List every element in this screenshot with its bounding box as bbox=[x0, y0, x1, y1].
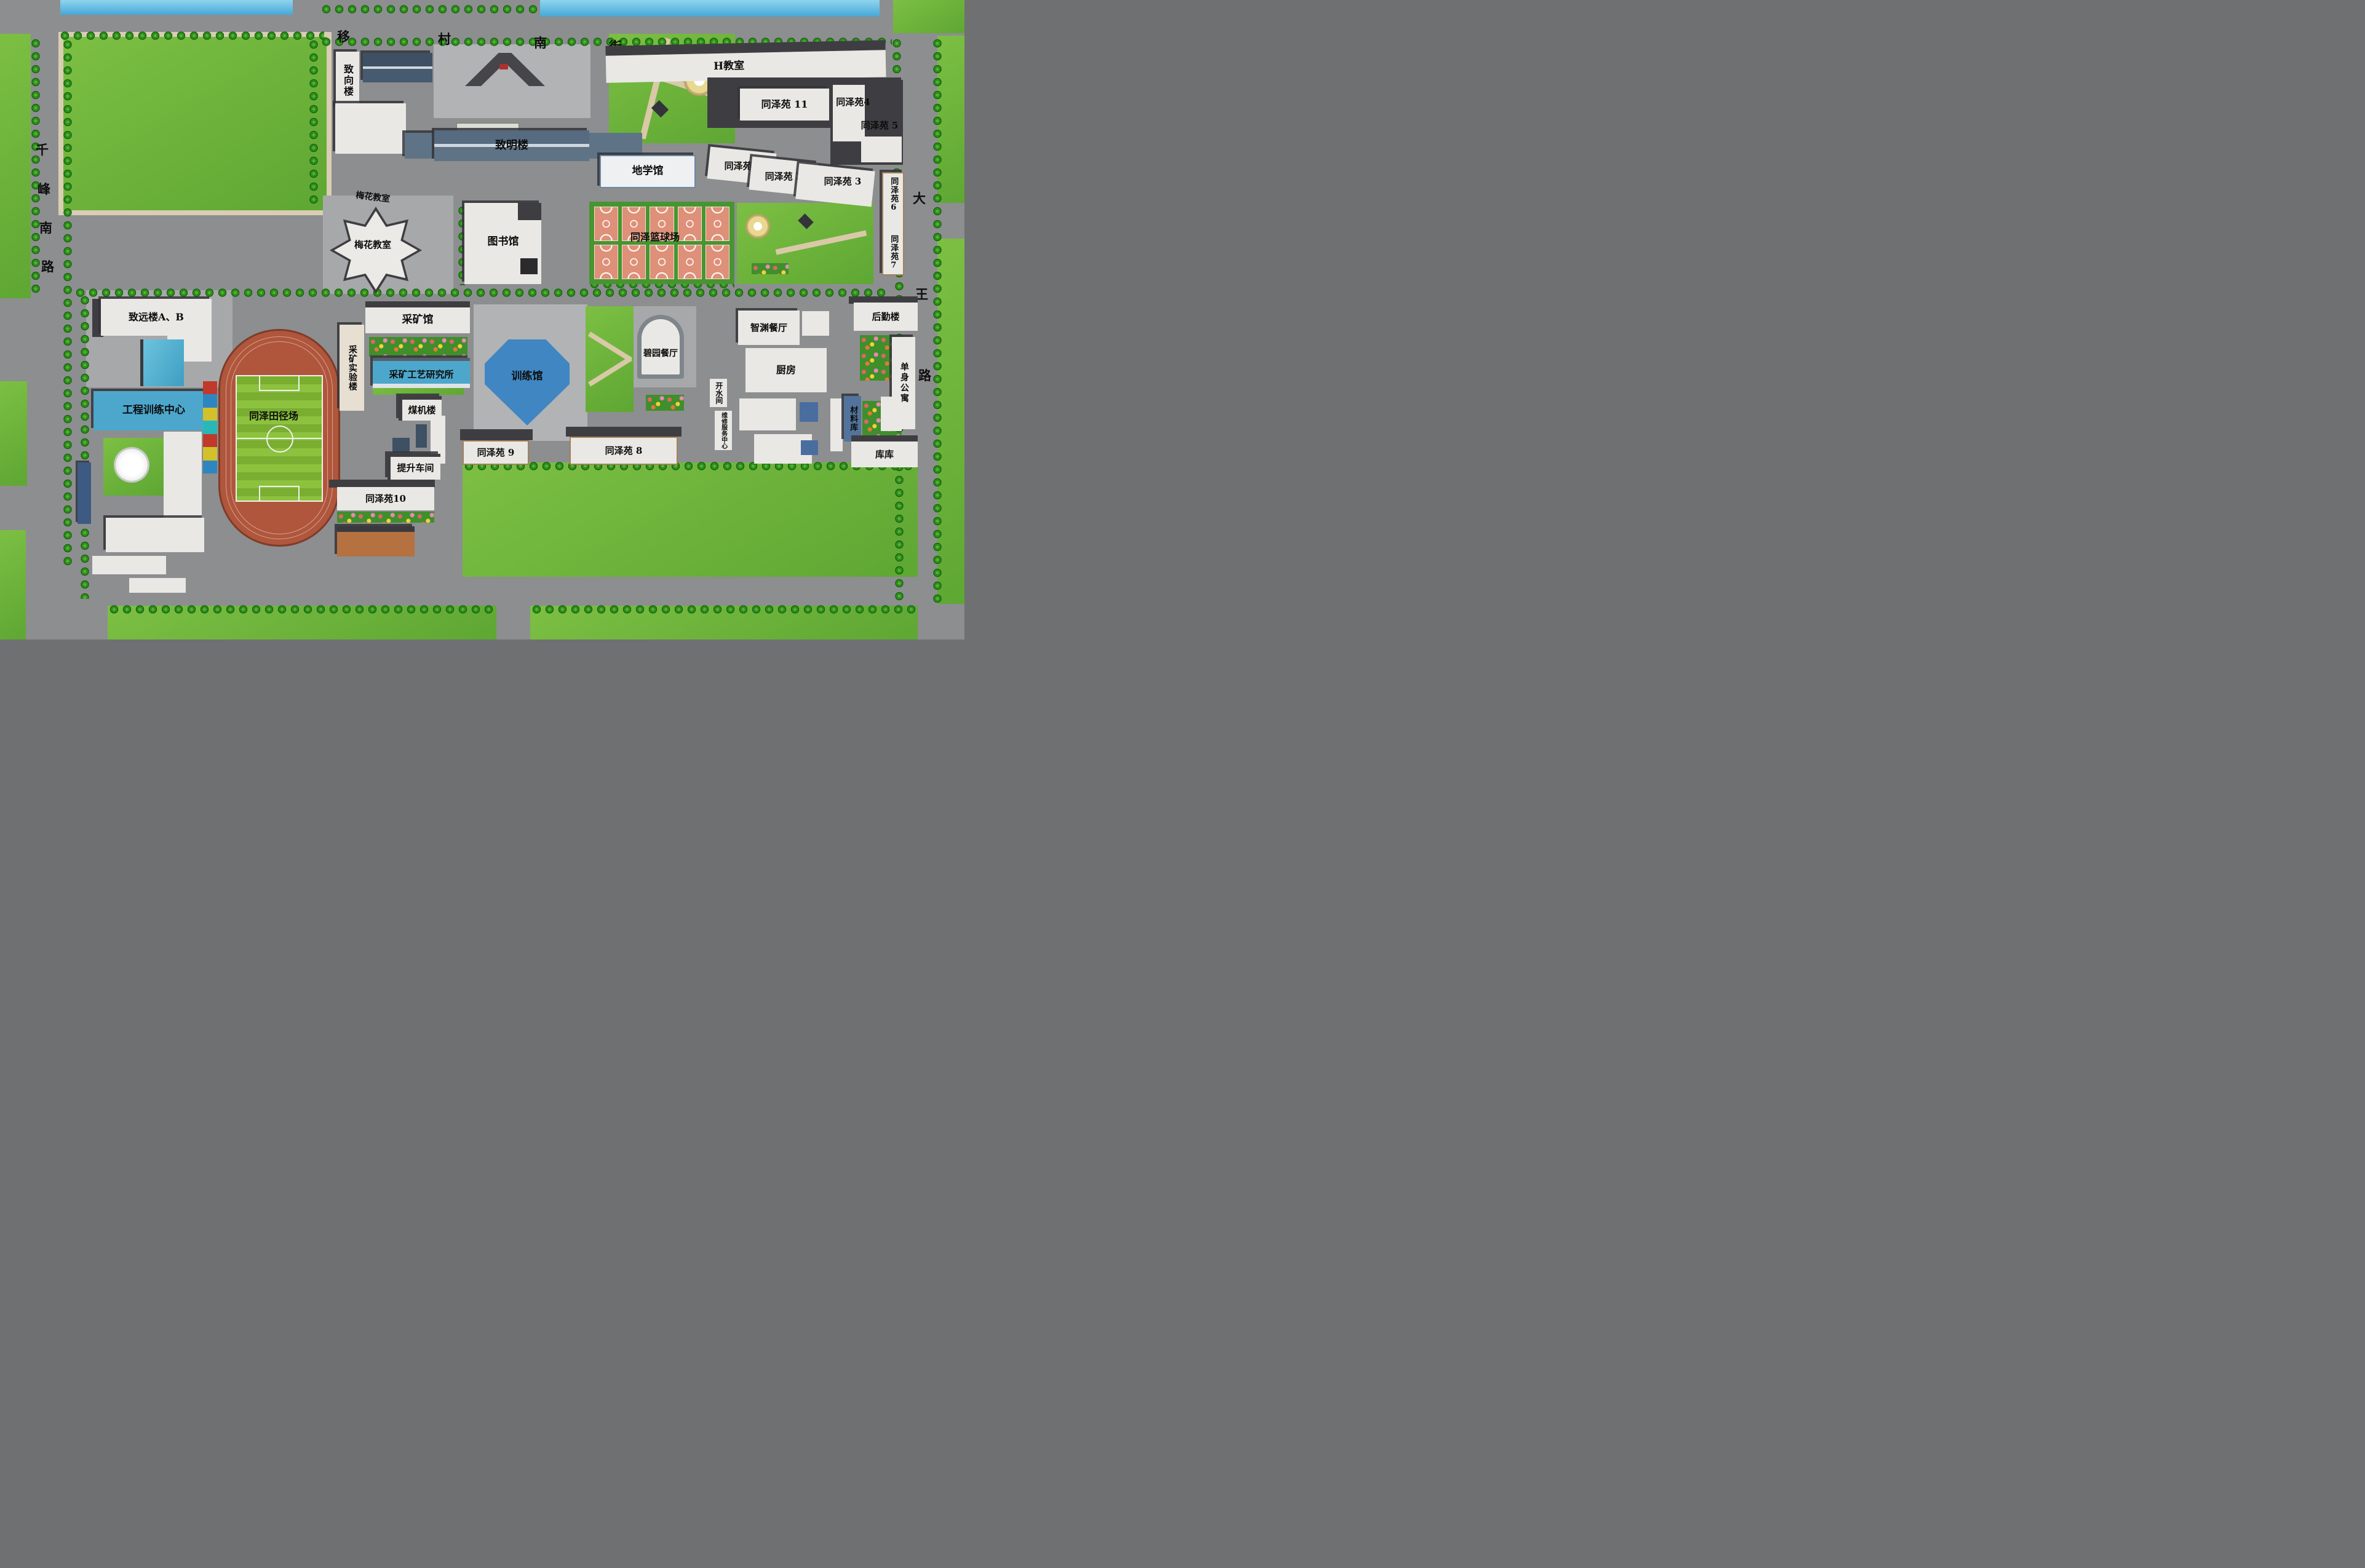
label-tzy3: 同泽苑 3 bbox=[818, 176, 867, 187]
lawn-northwest-field bbox=[58, 32, 332, 215]
building-kuku: 库库 bbox=[851, 441, 918, 467]
label-caikuang-shiyanlou: 采矿实验楼 bbox=[347, 345, 357, 391]
basketball-court bbox=[594, 245, 618, 279]
building-weixiu-fuwu: 维修服务中心 bbox=[715, 411, 732, 450]
building-houqinlou: 后勤楼 bbox=[854, 303, 918, 331]
basketball-court bbox=[622, 245, 646, 279]
pool bbox=[140, 339, 184, 386]
label-xunlianguan: 训练馆 bbox=[512, 371, 543, 382]
tree-column bbox=[30, 37, 42, 295]
basketball-courts bbox=[589, 202, 734, 284]
building-dixueguan: 地学馆 bbox=[600, 155, 696, 188]
building-tzy9: 同泽苑 9 bbox=[463, 440, 529, 465]
label-basketball: 同泽篮球场 bbox=[615, 232, 695, 243]
label-tisheng-chejian: 提升车间 bbox=[397, 463, 434, 473]
basketball-court bbox=[650, 245, 674, 279]
penalty-box bbox=[259, 375, 300, 391]
grandstand bbox=[203, 381, 217, 473]
building-biyuan-canting: 碧园餐厅 bbox=[637, 315, 684, 379]
street-name-north-char: 村 bbox=[438, 30, 451, 48]
building-kaishuijian: 开水间 bbox=[710, 379, 727, 407]
street-name-north-char: 移 bbox=[337, 27, 350, 46]
label-kaishuijian: 开水间 bbox=[714, 382, 722, 404]
label-tzy8: 同泽苑 8 bbox=[605, 446, 643, 456]
building-navy-slab bbox=[363, 53, 432, 82]
building-library-annex bbox=[518, 203, 541, 220]
label-chufang: 厨房 bbox=[776, 365, 796, 376]
label-zhiyuan-canting: 智渊餐厅 bbox=[750, 323, 787, 333]
building-zhixianglou: 致向楼 bbox=[336, 52, 359, 109]
building-biyuan-inner bbox=[642, 319, 680, 374]
lawn-left-edge bbox=[0, 34, 31, 298]
building-sw-slab bbox=[106, 518, 204, 552]
gate-red-accent bbox=[499, 64, 508, 69]
solar-panel-slab bbox=[416, 424, 427, 448]
building-meihua bbox=[334, 211, 418, 290]
basketball-court bbox=[706, 245, 729, 279]
label-meihua: 梅花教室 bbox=[344, 240, 401, 250]
garden-tzy10 bbox=[337, 512, 434, 523]
label-tzy5: 同泽苑 5 bbox=[856, 121, 903, 131]
building-zhiminglou-wing-left bbox=[405, 133, 437, 159]
building-zhiyuanlou-ab: 致远楼A、B bbox=[101, 299, 212, 336]
building-tzy6-tzy7: 同泽苑6 同泽苑7 bbox=[882, 172, 904, 275]
street-name-west-char: 千 bbox=[36, 140, 49, 159]
building-cailiaoku: 材料库 bbox=[844, 396, 861, 441]
building-gongcheng-xunlian: 工程训练中心 bbox=[93, 391, 214, 430]
street-name-west-char: 峰 bbox=[38, 180, 50, 198]
lawn-southeast-field bbox=[463, 462, 918, 577]
label-zhiyuanlou-ab: 致远楼A、B bbox=[129, 312, 184, 323]
tree-row bbox=[108, 603, 496, 616]
glass-roof-panel bbox=[800, 402, 818, 422]
river-top-right bbox=[540, 0, 880, 17]
label-dixueguan: 地学馆 bbox=[632, 165, 664, 177]
label-meijilou: 煤机楼 bbox=[408, 405, 435, 416]
penalty-box bbox=[259, 486, 300, 502]
building-caikuang-gongyi: 采矿工艺研究所 bbox=[373, 358, 470, 388]
label-library: 图书馆 bbox=[472, 236, 534, 248]
soccer-field bbox=[236, 375, 323, 502]
label-kuku: 库库 bbox=[875, 449, 894, 460]
tree-row bbox=[58, 30, 324, 42]
building-sw-tower bbox=[164, 432, 202, 521]
street-name-west-char: 路 bbox=[41, 257, 54, 275]
shade-tzy9 bbox=[460, 429, 533, 440]
garden-mining-1 bbox=[369, 337, 467, 357]
tree-column bbox=[62, 38, 74, 567]
building-caikuang-shiyanlou: 采矿实验楼 bbox=[340, 325, 364, 411]
label-tzy9: 同泽苑 9 bbox=[477, 448, 515, 458]
label-tzy7: 同泽苑7 bbox=[889, 235, 898, 271]
building-zhiyuan-annex bbox=[802, 311, 829, 336]
shade-kuku bbox=[851, 435, 918, 441]
shade-tzy8 bbox=[566, 427, 682, 437]
building-library-block bbox=[520, 258, 538, 274]
label-caikuang-gongyi: 采矿工艺研究所 bbox=[389, 370, 453, 380]
label-tzy6: 同泽苑6 bbox=[889, 177, 898, 213]
street-name-west-char: 南 bbox=[39, 218, 52, 237]
building-sw-small2 bbox=[129, 578, 186, 593]
building-sw-blue-slab bbox=[78, 462, 91, 524]
lawn-bottom-left-corner bbox=[0, 530, 26, 639]
label-h-classroom: H教室 bbox=[713, 60, 744, 73]
building-zhiyuan-canting: 智渊餐厅 bbox=[738, 311, 800, 345]
label-tzy11: 同泽苑 11 bbox=[761, 99, 808, 110]
label-zhiminglou: 致明楼 bbox=[495, 140, 528, 152]
label-caikuangguan: 采矿馆 bbox=[402, 314, 434, 326]
flower-bed bbox=[752, 263, 789, 274]
building-tisheng-chejian: 提升车间 bbox=[388, 454, 440, 480]
tree-row bbox=[74, 287, 886, 299]
lawn-left-edge-lower bbox=[0, 381, 27, 486]
building-zhiminglou: 致明楼 bbox=[434, 130, 589, 161]
building-dining-annex bbox=[739, 398, 796, 430]
label-tzy4: 同泽苑4 bbox=[832, 97, 875, 108]
solar-panel-slab bbox=[392, 438, 410, 453]
building-chufang: 厨房 bbox=[745, 348, 827, 392]
tree-row bbox=[320, 3, 541, 15]
building-cailiaoku-neighbor bbox=[830, 398, 843, 451]
street-name-north-char: 南 bbox=[534, 33, 547, 52]
glass-roof-panel bbox=[801, 440, 818, 455]
sun-fountain bbox=[745, 214, 770, 239]
building-caikuangguan: 采矿馆 bbox=[365, 307, 470, 333]
garden-houqin bbox=[860, 335, 896, 381]
street-name-east-char: 路 bbox=[918, 366, 931, 384]
building-tzy5 bbox=[861, 137, 902, 162]
building-east-roadside bbox=[881, 397, 902, 431]
circular-plaza bbox=[116, 449, 148, 481]
campus-master-plan-map: 移 村 南 街 千 峰 南 路 大 王 路 致向楼 致明楼 H教室 同泽苑 11… bbox=[0, 0, 964, 639]
building-tzy11: 同泽苑 11 bbox=[740, 89, 829, 121]
label-weixiu-fuwu: 维修服务中心 bbox=[720, 412, 726, 449]
tree-column bbox=[79, 294, 91, 599]
building-tzy4 bbox=[833, 85, 865, 141]
building-sw-small bbox=[92, 556, 166, 574]
tree-row bbox=[463, 460, 918, 472]
label-zhixianglou: 致向楼 bbox=[342, 64, 353, 97]
street-name-east-char: 大 bbox=[913, 189, 926, 207]
building-tzy8: 同泽苑 8 bbox=[570, 437, 678, 465]
label-tianjingchang: 同泽田径场 bbox=[234, 411, 314, 422]
building-tzy10: 同泽苑10 bbox=[337, 487, 434, 510]
building-unlabeled-west bbox=[335, 103, 406, 154]
tree-row bbox=[530, 603, 918, 616]
label-cailiaoku: 材料库 bbox=[848, 406, 857, 432]
flower-diamond-garden bbox=[646, 395, 684, 411]
label-tzy10: 同泽苑10 bbox=[365, 494, 406, 504]
label-gongcheng-xunlian: 工程训练中心 bbox=[122, 405, 185, 416]
tree-column bbox=[308, 38, 320, 205]
label-houqinlou: 后勤楼 bbox=[872, 312, 899, 322]
building-brown-terrace bbox=[337, 526, 415, 556]
label-biyuan-canting: 碧园餐厅 bbox=[640, 349, 682, 359]
basketball-court bbox=[706, 207, 729, 241]
lawn-top-right-corner bbox=[893, 0, 964, 33]
running-track bbox=[220, 331, 338, 545]
basketball-court bbox=[678, 245, 702, 279]
river-top-left bbox=[60, 0, 293, 15]
tree-column bbox=[931, 37, 944, 603]
